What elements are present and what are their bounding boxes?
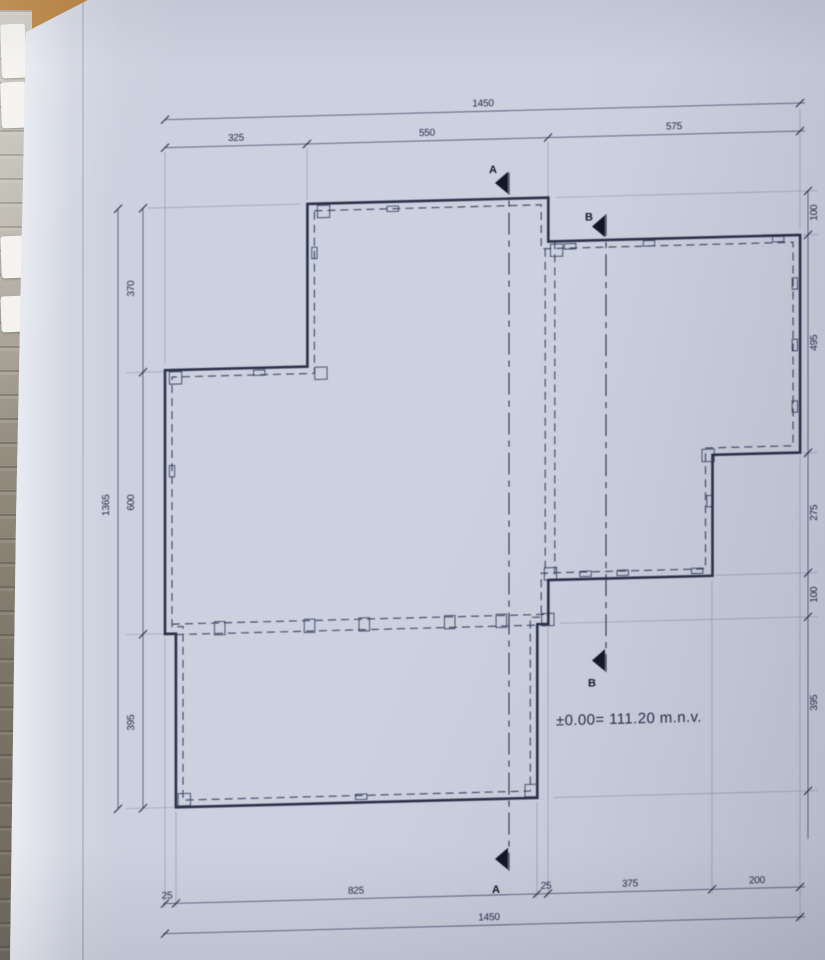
level-annotation: ±0.00= 111.20 m.n.v.: [556, 709, 702, 730]
dimension-label: 375: [622, 878, 639, 889]
dimension-label: 395: [809, 694, 820, 711]
dimension-label: 600: [126, 494, 137, 511]
dimension-label: 550: [419, 128, 436, 139]
dimension-label: 200: [749, 875, 766, 886]
section-letter: A: [489, 164, 497, 176]
wall-ticks: [169, 193, 797, 806]
section-arrow: [495, 848, 508, 870]
floor-plan-drawing: ±0.00= 111.20 m.n.v. 1450325550575258252…: [0, 0, 825, 960]
interior-dashed-lines: [172, 241, 555, 634]
section-arrow: [592, 649, 605, 671]
dimension-label: 100: [809, 586, 820, 603]
section-letter: A: [492, 884, 500, 896]
photo-of-floor-plan: ±0.00= 111.20 m.n.v. 1450325550575258252…: [0, 0, 825, 960]
section-arrow: [592, 215, 605, 237]
dimension-label: 25: [162, 890, 173, 901]
dimension-label: 1450: [478, 912, 500, 924]
dimension-label: 370: [126, 280, 137, 297]
building-outline: [165, 191, 800, 808]
dimension-label: 325: [228, 133, 245, 144]
dimension-label: 100: [809, 204, 820, 221]
dimension-label: 395: [126, 714, 137, 731]
section-letter: B: [588, 677, 596, 689]
dimension-label: 275: [809, 504, 820, 521]
dimension-label: 495: [809, 334, 820, 351]
dimension-label: 575: [666, 121, 683, 132]
section-line-A: AA: [489, 164, 509, 897]
dimension-label: 1365: [101, 494, 112, 516]
dimension-label: 825: [348, 885, 365, 896]
section-letter: B: [585, 211, 593, 223]
dimension-label: 25: [541, 881, 552, 892]
dimension-label: 1450: [472, 98, 494, 110]
section-line-B: BB: [585, 211, 606, 690]
extension-lines: [126, 109, 818, 939]
